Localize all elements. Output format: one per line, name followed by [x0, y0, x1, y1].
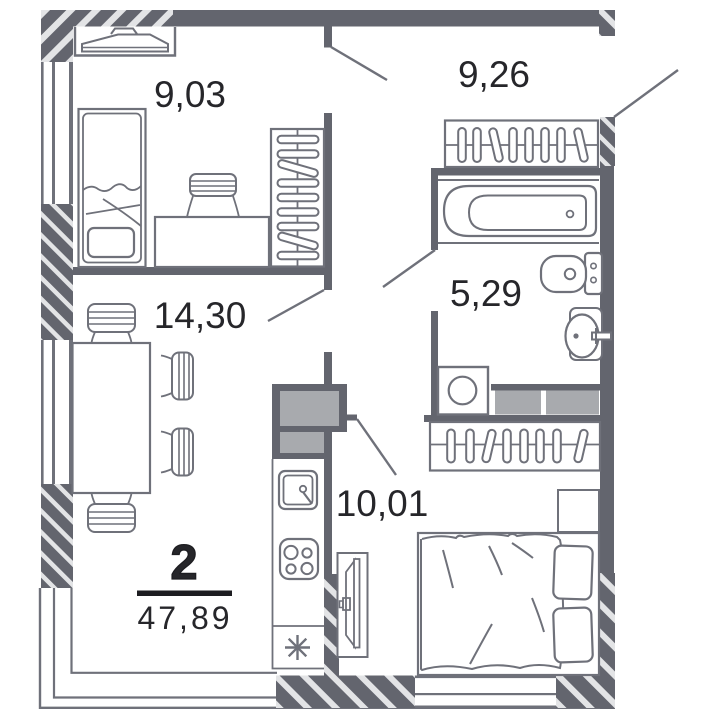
- svg-text:10,01: 10,01: [336, 483, 429, 524]
- svg-text:5,29: 5,29: [450, 273, 522, 314]
- svg-text:2: 2: [170, 536, 197, 590]
- svg-text:9,03: 9,03: [154, 74, 226, 115]
- svg-text:9,26: 9,26: [458, 54, 530, 95]
- svg-text:14,30: 14,30: [154, 295, 247, 336]
- svg-text:47,89: 47,89: [137, 600, 232, 636]
